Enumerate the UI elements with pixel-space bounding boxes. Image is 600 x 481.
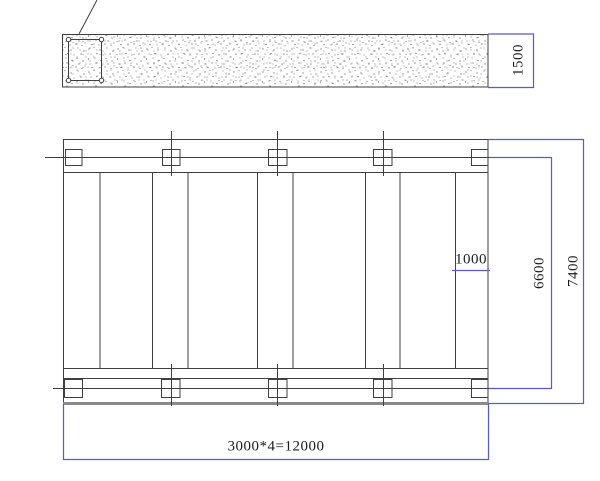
dim-label-12000: 3000*4=12000 (228, 440, 325, 455)
leader-line (79, 0, 97, 34)
dim-label-7400: 7400 (567, 255, 582, 287)
dim-label-6600: 6600 (533, 257, 548, 289)
slab-strip (153, 173, 189, 369)
slab-strip (366, 173, 401, 369)
slab-strip (258, 173, 294, 369)
slab-strip (64, 173, 101, 369)
dim-label-1500: 1500 (512, 44, 527, 76)
dim-label-1000: 1000 (455, 253, 487, 268)
section-view (63, 0, 489, 87)
slab-strips (64, 173, 489, 369)
dimension-lines (64, 34, 584, 460)
plan-view (45, 131, 500, 406)
plan-outline (64, 140, 489, 404)
drawing-canvas: 1500 1000 6600 7400 3000*4=12000 (0, 0, 600, 481)
concrete-strip-hatch (63, 35, 489, 88)
